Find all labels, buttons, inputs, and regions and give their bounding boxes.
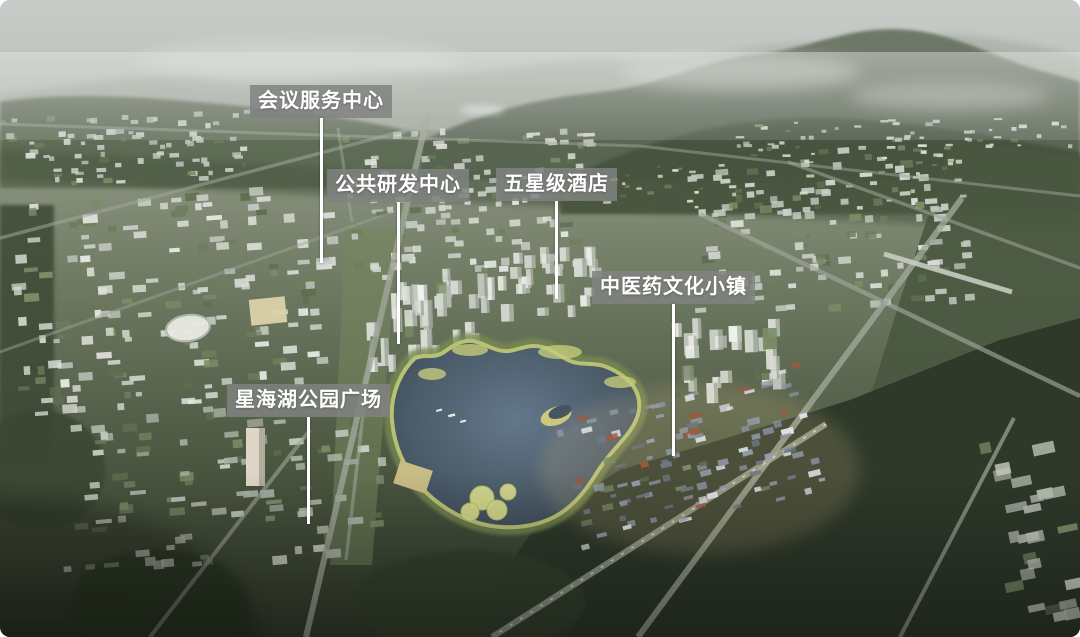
label-five-star-hotel: 五星级酒店: [496, 168, 617, 201]
label-public-rd-center: 公共研发中心: [327, 169, 469, 202]
label-conference-service-center: 会议服务中心: [250, 85, 392, 118]
annotation-xinghai-lake-park-plaza: 星海湖公园广场: [227, 384, 390, 524]
leader-line-tcm-culture-town: [672, 304, 675, 456]
label-tcm-culture-town: 中医药文化小镇: [592, 271, 755, 304]
leader-line-five-star-hotel: [555, 201, 558, 299]
leader-line-conference-service-center: [320, 118, 323, 263]
leader-line-public-rd-center: [397, 202, 400, 344]
scene-rendering: [0, 0, 1080, 637]
leader-line-xinghai-lake-park-plaza: [307, 417, 310, 524]
civic-building: [249, 296, 288, 326]
annotation-tcm-culture-town: 中医药文化小镇: [592, 271, 755, 456]
label-xinghai-lake-park-plaza: 星海湖公园广场: [227, 384, 390, 417]
aerial-masterplan-rendering: 会议服务中心 公共研发中心 五星级酒店 中医药文化小镇 星海湖公园广场: [0, 0, 1080, 637]
annotation-public-rd-center: 公共研发中心: [327, 169, 469, 344]
